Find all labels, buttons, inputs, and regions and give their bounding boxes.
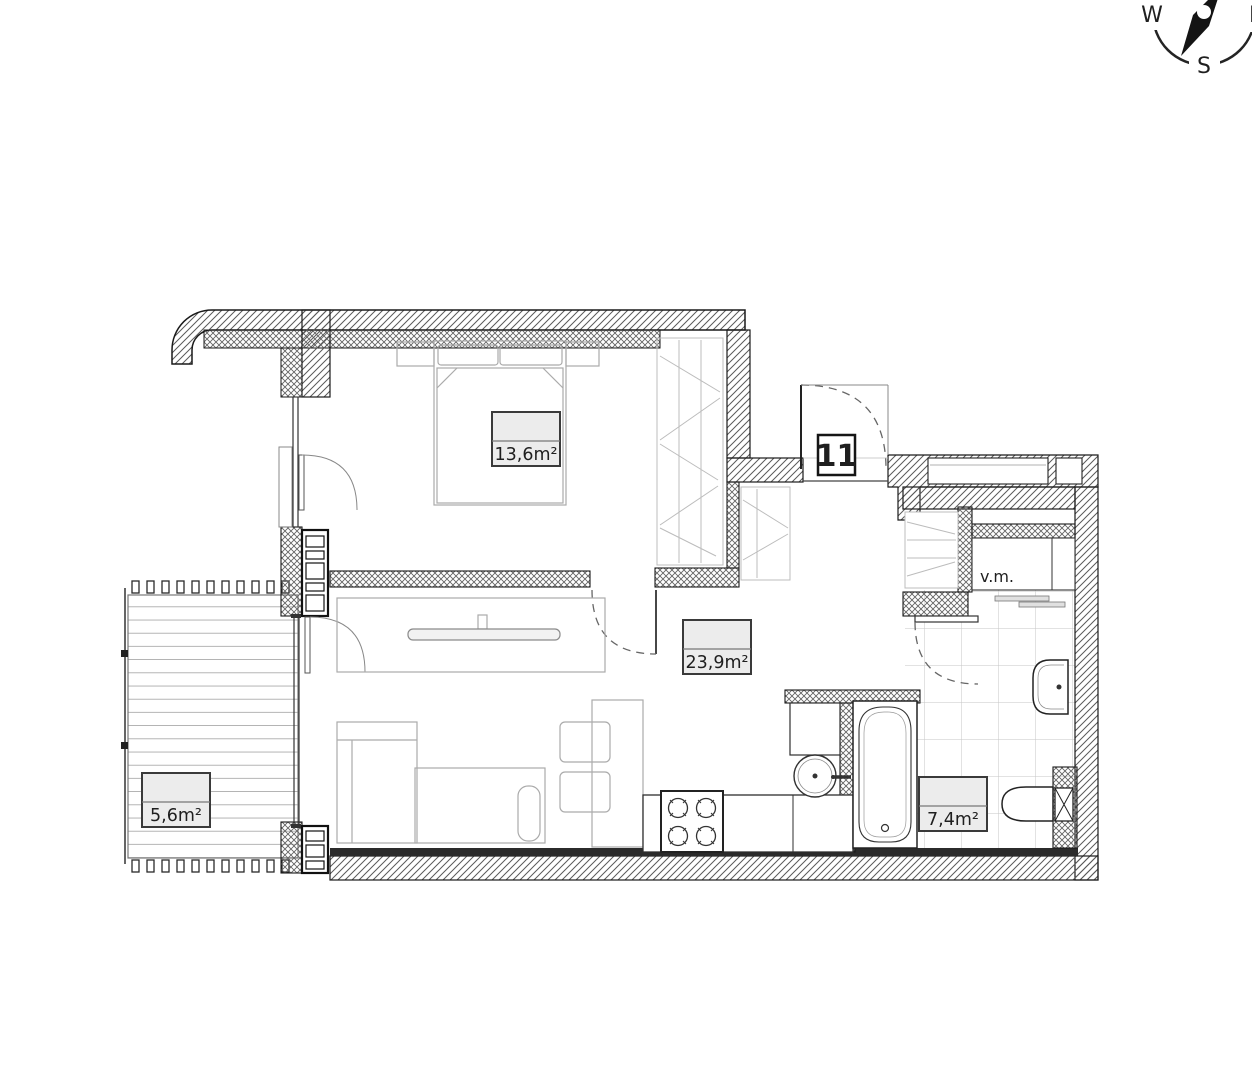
sink-drain xyxy=(813,774,818,779)
top-wall-inner-layer xyxy=(204,330,660,348)
hall-wardrobe-2 xyxy=(905,512,958,588)
rail-post xyxy=(121,650,128,657)
towel-rail xyxy=(1019,602,1065,607)
north-wall-inner-band xyxy=(903,487,1075,509)
bedroom-window-leaf xyxy=(299,455,304,510)
glazing-cap xyxy=(291,824,301,828)
north-window-small xyxy=(1056,458,1082,484)
west-column-upper xyxy=(281,527,302,616)
sink-cabinet xyxy=(790,703,840,755)
bathtub xyxy=(853,701,917,848)
east-wall xyxy=(1075,487,1098,880)
area-label-living-room: 23,9m² xyxy=(683,620,751,674)
living-room-area-text: 23,9m² xyxy=(685,653,748,673)
toilet xyxy=(1002,787,1053,821)
compass-west-label: W xyxy=(1141,3,1163,28)
unit-number-text: 11 xyxy=(816,439,858,474)
bathroom-door-leaf xyxy=(915,616,978,622)
washbasin xyxy=(1033,660,1068,714)
west-column-lower xyxy=(281,822,302,873)
north-window-large xyxy=(928,458,1048,484)
installation-shaft-lower xyxy=(302,826,328,873)
area-label-balcony: 5,6m² xyxy=(142,773,210,827)
bedroom-area-text: 13,6m² xyxy=(494,445,557,465)
towel-rail xyxy=(995,596,1049,601)
entry-wall-left xyxy=(727,458,803,482)
balcony xyxy=(121,581,298,872)
washing-machine-niche-wall xyxy=(972,524,1075,538)
bathroom-north-wall xyxy=(903,592,968,616)
area-label-bathroom: 7,4m² xyxy=(919,777,987,831)
area-label-bedroom: 13,6m² xyxy=(492,412,560,466)
bedroom-hall-wall xyxy=(655,568,739,587)
bathroom-area-text: 7,4m² xyxy=(927,810,979,830)
washing-machine-label: v.m. xyxy=(980,567,1014,586)
bedroom-east-partition xyxy=(727,482,739,568)
unit-number-badge: 11 xyxy=(816,435,858,475)
vent-shaft xyxy=(1055,788,1073,821)
balcony-door-leaf xyxy=(305,617,310,673)
bedroom-east-wall xyxy=(727,330,750,458)
glazing-cap xyxy=(291,614,301,618)
floor-plan-drawing: v.m. 13,6m² 23,9m² xyxy=(0,0,1252,1066)
rail-post xyxy=(121,742,128,749)
compass-south-label: S xyxy=(1197,54,1211,79)
floor-plan-page: v.m. 13,6m² 23,9m² xyxy=(0,0,1252,1066)
installation-shaft-upper xyxy=(302,530,328,616)
balcony-area-text: 5,6m² xyxy=(150,806,202,826)
wall-pier-northwest-inner xyxy=(281,348,302,397)
bedroom-living-wall xyxy=(330,571,590,587)
south-wall xyxy=(330,856,1098,880)
faucet-head xyxy=(831,775,835,779)
tv xyxy=(408,629,560,640)
hall-bathroom-wall xyxy=(958,507,972,592)
compass-needle-hole xyxy=(1197,5,1211,19)
basin-drain xyxy=(1057,685,1062,690)
wall-pier-northwest xyxy=(302,310,330,397)
